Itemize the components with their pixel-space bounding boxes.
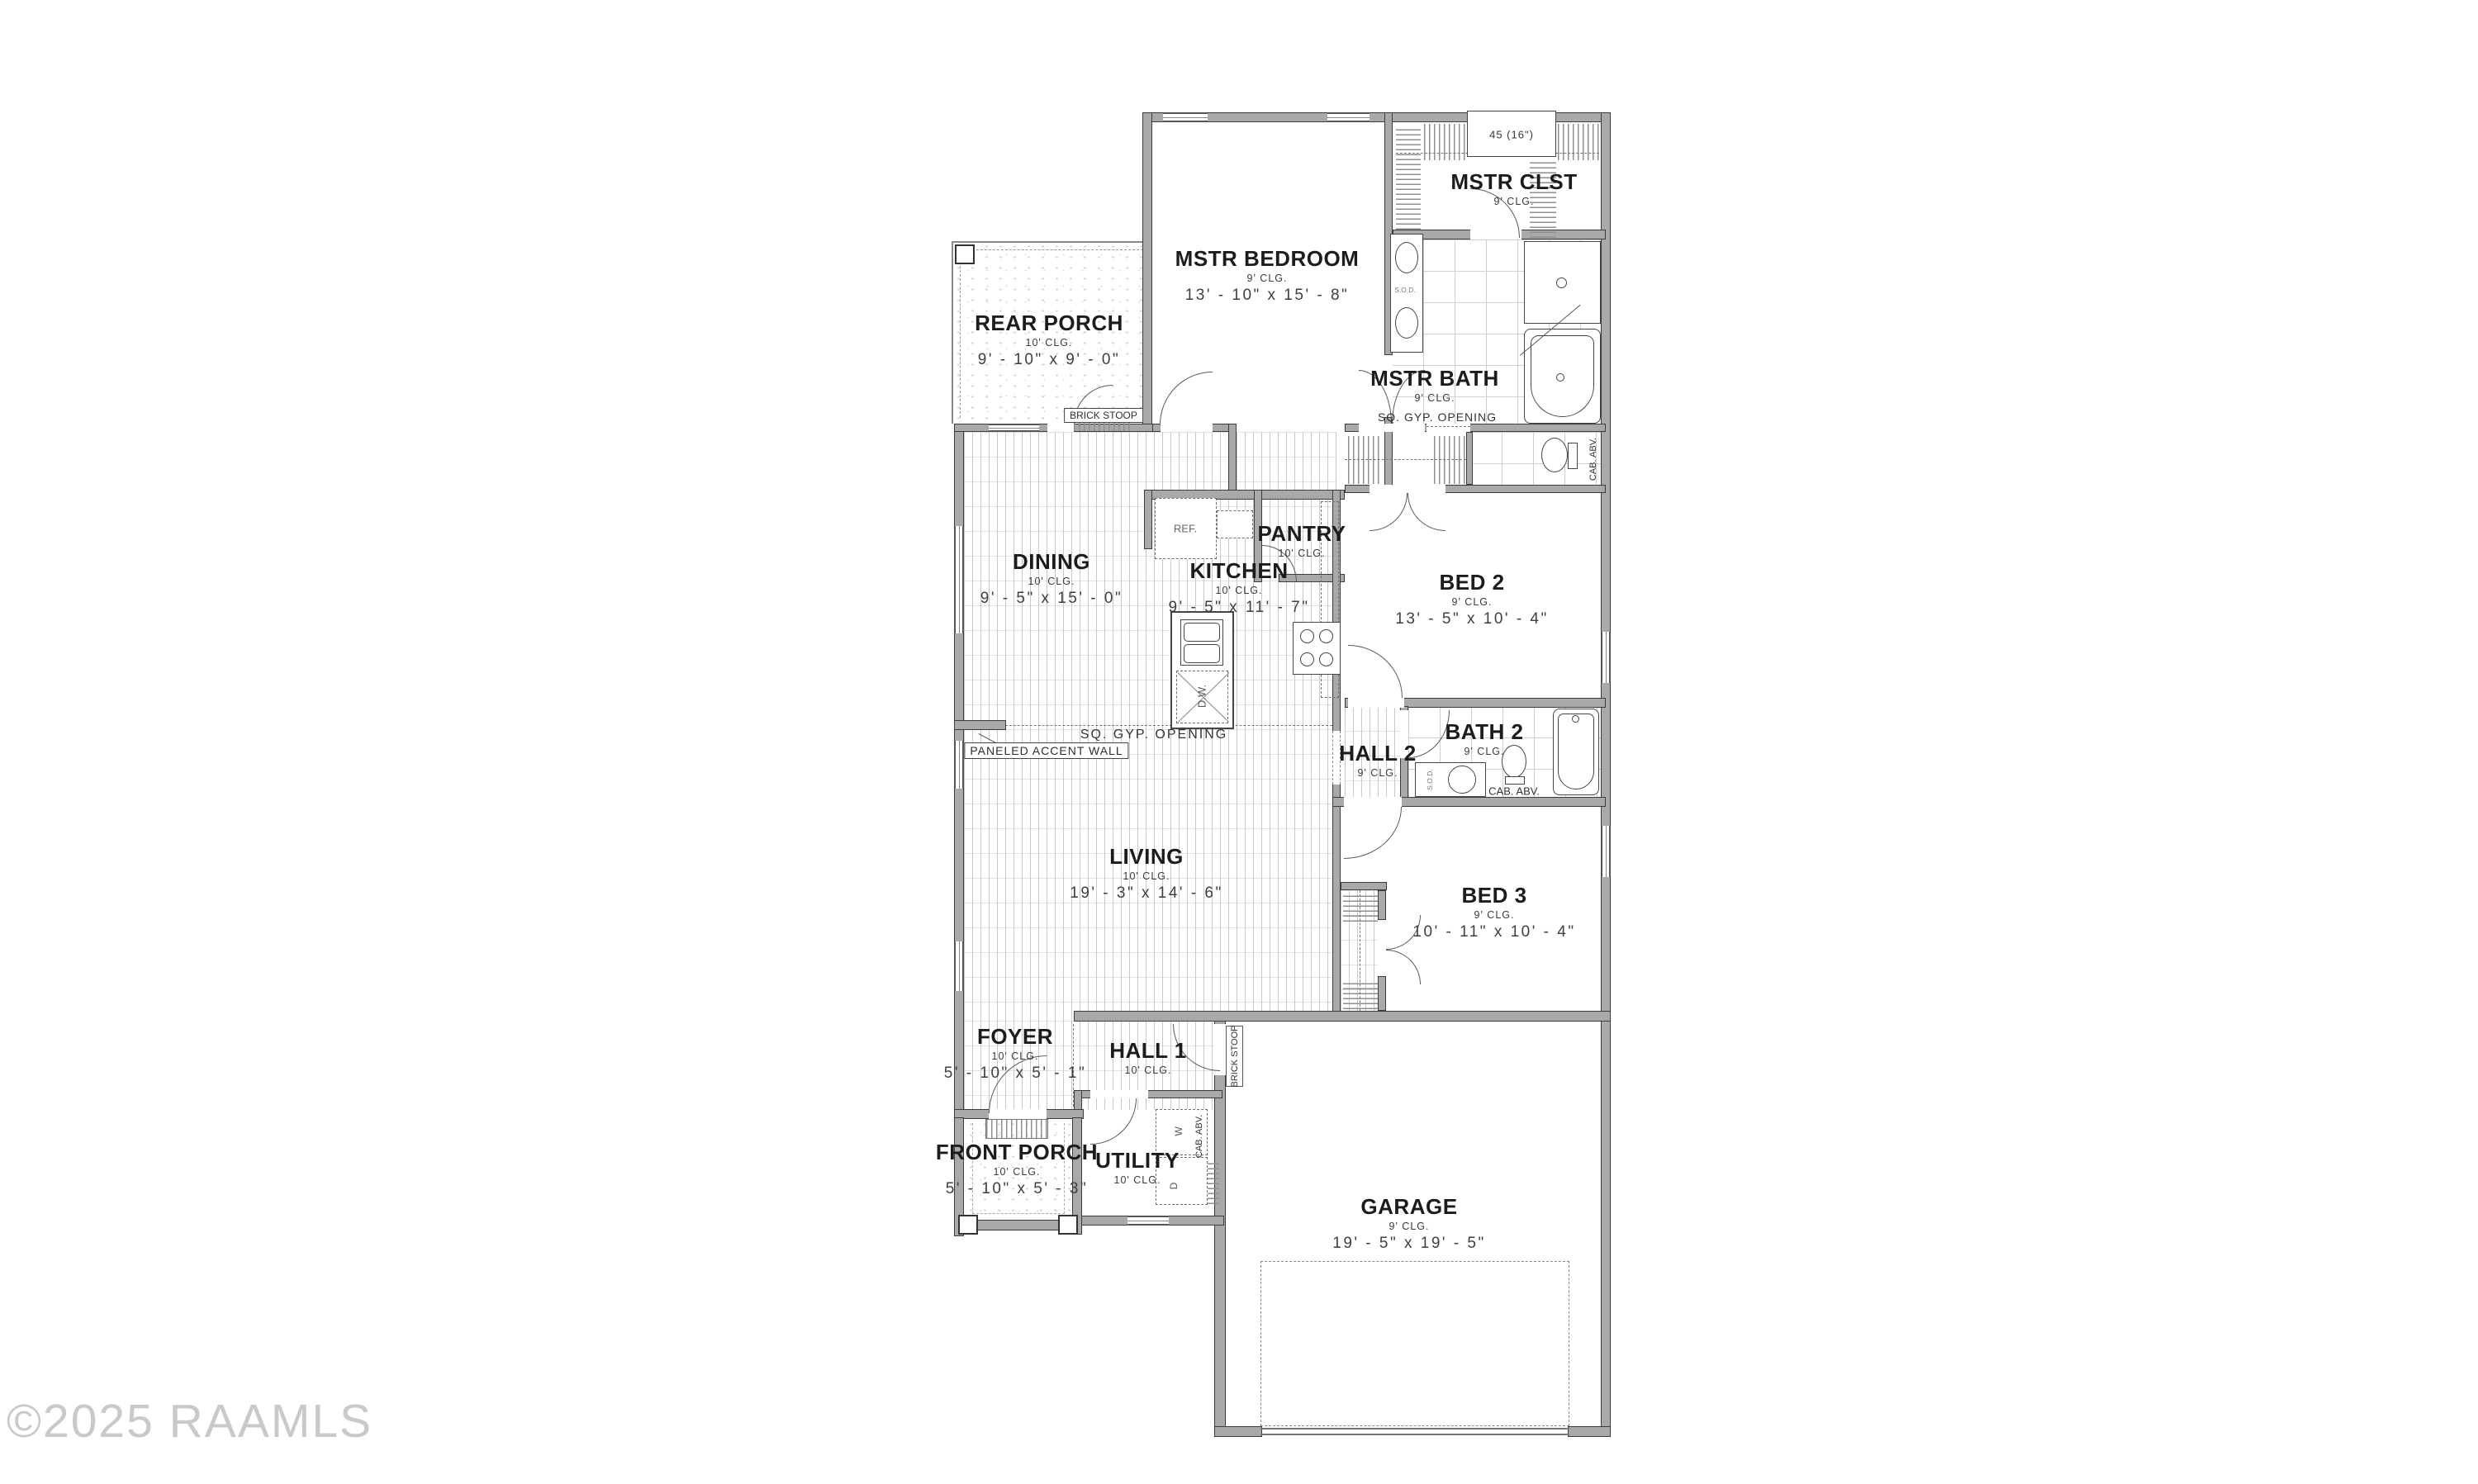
closet-rod-icon <box>1558 124 1599 160</box>
room-label-mstr-clst: MSTR CLST 9' CLG. <box>1450 169 1577 208</box>
room-name: BATH 2 <box>1445 719 1524 745</box>
room-label-dining: DINING 10' CLG. 9' - 5" x 15' - 0" <box>980 549 1123 609</box>
door-swing-arc <box>1370 493 1408 531</box>
room-ceiling: 9' CLG. <box>1412 909 1575 922</box>
brick-stoop-note: BRICK STOOP <box>1064 408 1143 423</box>
paneled-accent-wall-note: PANELED ACCENT WALL <box>964 742 1128 759</box>
toilet-tank-icon <box>1505 776 1525 785</box>
sink-basin-icon <box>1184 623 1220 642</box>
door-opening <box>1348 698 1404 708</box>
garage-door-track <box>1260 1261 1569 1426</box>
closet-rod-icon <box>1434 436 1465 484</box>
toilet-tank-icon <box>1568 443 1578 469</box>
sink-icon <box>1395 242 1418 273</box>
closet-rod-icon <box>1424 124 1465 160</box>
wall <box>1466 432 1473 485</box>
room-label-kitchen: KITCHEN 10' CLG. 9' - 5" x 11' - 7" <box>1169 558 1310 618</box>
shower-drain-icon <box>1556 277 1567 288</box>
porch-post <box>958 1215 978 1235</box>
sod-note: S.O.D. <box>1426 769 1434 790</box>
garage-door <box>1260 1428 1569 1435</box>
room-name: BED 3 <box>1412 883 1575 908</box>
room-dims: 9' - 5" x 15' - 0" <box>980 590 1123 609</box>
toilet-icon <box>1541 438 1568 472</box>
bathtub-basin-icon <box>1558 714 1594 789</box>
tub-faucet-icon <box>1556 373 1564 382</box>
room-name: PANTRY <box>1258 521 1346 547</box>
room-name: LIVING <box>1070 844 1222 870</box>
closet-rod-line <box>1345 459 1466 460</box>
window <box>989 424 1039 432</box>
room-ceiling: 10' CLG. <box>1169 585 1310 597</box>
room-ceiling: 9' CLG. <box>1445 746 1524 758</box>
window <box>954 741 964 789</box>
cab-abv-note: CAB. ABV. <box>1488 785 1540 798</box>
tub-faucet-icon <box>1572 715 1579 723</box>
floor-plan: 45 (16") <box>0 0 2478 1484</box>
door-opening <box>1090 1090 1148 1098</box>
room-name: FOYER <box>944 1024 1086 1050</box>
sq-gyp-opening-note: SQ. GYP. OPENING <box>1378 410 1497 424</box>
door-opening <box>1359 424 1425 432</box>
window <box>1163 112 1208 122</box>
door-swing-arc <box>1344 807 1402 859</box>
room-label-foyer: FOYER 10' CLG. 5' - 10" x 5' - 1" <box>944 1024 1086 1083</box>
closet-rod-icon <box>1343 979 1378 1009</box>
sq-gyp-opening-gap <box>1427 424 1470 432</box>
paneled-accent-wall-stub <box>954 720 1006 730</box>
door-swing-arc <box>1386 950 1421 984</box>
wall <box>1074 1011 1611 1022</box>
brick-steps <box>985 1119 1048 1139</box>
brick-steps <box>1074 423 1133 431</box>
room-label-hall2: HALL 2 9' CLG. <box>1339 741 1417 780</box>
room-name: BED 2 <box>1395 570 1548 595</box>
room-ceiling: 9' CLG. <box>1370 392 1499 405</box>
closet-rod-line <box>1360 890 1360 1011</box>
window <box>954 526 964 633</box>
window <box>1327 112 1370 122</box>
sq-gyp-opening-note: SQ. GYP. OPENING <box>1080 728 1227 742</box>
watermark: ©2025 RAAMLS <box>7 1394 373 1448</box>
cab-abv-note: CAB. ABV. <box>1588 438 1598 481</box>
room-label-garage: GARAGE 9' CLG. 19' - 5" x 19' - 5" <box>1332 1194 1485 1254</box>
room-label-mstr-bath: MSTR BATH 9' CLG. <box>1370 366 1499 405</box>
room-name: HALL 2 <box>1339 741 1417 766</box>
refrigerator-note: REF. <box>1174 523 1197 535</box>
room-dims: 19' - 5" x 19' - 5" <box>1332 1235 1485 1254</box>
room-ceiling: 10' CLG. <box>944 1050 1086 1063</box>
room-label-front-porch: FRONT PORCH 10' CLG. 5' - 10" x 5' - 3" <box>936 1140 1098 1199</box>
sq-gyp-opening-line <box>1427 426 1470 427</box>
window <box>1127 1216 1169 1226</box>
cab-abv-note: CAB. ABV. <box>1194 1115 1204 1158</box>
wall <box>964 1220 1072 1230</box>
door-opening <box>1370 485 1445 493</box>
sod-note: S.O.D. <box>1394 286 1416 294</box>
room-label-hall1: HALL 1 10' CLG. <box>1109 1038 1187 1077</box>
wall <box>1144 490 1152 549</box>
room-dims: 5' - 10" x 5' - 3" <box>936 1180 1098 1199</box>
door-swing-arc <box>1090 1098 1137 1145</box>
porch-post <box>1058 1215 1078 1235</box>
sink-basin-icon <box>1184 644 1220 663</box>
room-ceiling: 9' CLG. <box>1450 196 1577 208</box>
room-ceiling: 9' CLG. <box>1175 273 1360 285</box>
wall <box>1378 890 1386 920</box>
room-dims: 13' - 5" x 10' - 4" <box>1395 610 1548 629</box>
room-label-rear-porch: REAR PORCH 10' CLG. 9' - 10" x 9' - 0" <box>975 311 1123 370</box>
door-opening <box>1047 424 1074 432</box>
room-ceiling: 10' CLG. <box>1109 1064 1187 1077</box>
room-dims: 13' - 10" x 15' - 8" <box>1175 287 1360 306</box>
room-dims: 19' - 3" x 14' - 6" <box>1070 884 1222 903</box>
wall <box>1142 112 1152 432</box>
burner-icon <box>1319 652 1333 666</box>
burner-icon <box>1300 629 1314 643</box>
room-ceiling: 10' CLG. <box>975 337 1123 349</box>
door-opening <box>1161 424 1213 432</box>
tile-floor-mstr-wc <box>1470 432 1601 485</box>
room-ceiling: 9' CLG. <box>1332 1221 1485 1233</box>
room-label-pantry: PANTRY 10' CLG. <box>1258 521 1346 560</box>
room-dims: 9' - 10" x 9' - 0" <box>975 351 1123 370</box>
closet-rod-icon <box>1396 126 1421 230</box>
room-dims: 9' - 5" x 11' - 7" <box>1169 599 1310 618</box>
room-label-mstr-bedroom: MSTR BEDROOM 9' CLG. 13' - 10" x 15' - 8… <box>1175 246 1360 306</box>
wall <box>1378 976 1386 1011</box>
room-label-utility: UTILITY 10' CLG. <box>1095 1148 1180 1187</box>
room-ceiling: 10' CLG. <box>980 576 1123 588</box>
room-ceiling: 10' CLG. <box>936 1166 1098 1178</box>
sink-icon <box>1448 766 1476 794</box>
room-name: MSTR BATH <box>1370 366 1499 391</box>
wall <box>1214 1021 1226 1437</box>
wall <box>1568 1426 1611 1437</box>
window <box>954 941 964 991</box>
dryer-note: D <box>1168 1183 1180 1190</box>
door-swing-arc <box>1160 372 1213 424</box>
wall <box>1228 424 1237 498</box>
room-dims: 10' - 11" x 10' - 4" <box>1412 923 1575 942</box>
wall <box>1341 882 1387 890</box>
sink-icon <box>1395 307 1418 339</box>
room-ceiling: 9' CLG. <box>1339 767 1417 780</box>
door-opening <box>1344 797 1402 807</box>
wall <box>1214 1426 1262 1437</box>
door-swing-arc <box>1408 493 1445 531</box>
cabinet-icon <box>1217 510 1253 538</box>
room-name: FRONT PORCH <box>936 1140 1098 1165</box>
room-label-bath2: BATH 2 9' CLG. <box>1445 719 1524 758</box>
burner-icon <box>1300 652 1314 666</box>
closet-shelf-note: 45 (16") <box>1489 129 1534 141</box>
sq-gyp-opening-line <box>964 725 1332 726</box>
washer-note: W <box>1173 1126 1184 1136</box>
closet-rod-icon <box>1343 892 1378 922</box>
range-icon <box>1293 622 1341 675</box>
wall <box>1601 112 1611 1437</box>
room-ceiling: 9' CLG. <box>1395 596 1548 609</box>
room-name: DINING <box>980 549 1123 575</box>
room-label-bed3: BED 3 9' CLG. 10' - 11" x 10' - 4" <box>1412 883 1575 942</box>
window <box>1601 632 1611 683</box>
brick-stoop-note: BRICK STOOP <box>1230 1026 1240 1088</box>
room-dims: 5' - 10" x 5' - 1" <box>944 1064 1086 1083</box>
window <box>1601 826 1611 877</box>
room-name: UTILITY <box>1095 1148 1180 1173</box>
room-name: KITCHEN <box>1169 558 1310 584</box>
closet-rod-icon <box>1348 436 1381 484</box>
room-label-bed2: BED 2 9' CLG. 13' - 5" x 10' - 4" <box>1395 570 1548 629</box>
room-ceiling: 10' CLG. <box>1070 870 1222 883</box>
room-name: MSTR CLST <box>1450 169 1577 195</box>
door-swing-arc <box>1348 645 1403 698</box>
room-label-living: LIVING 10' CLG. 19' - 3" x 14' - 6" <box>1070 844 1222 903</box>
room-name: GARAGE <box>1332 1194 1485 1220</box>
room-ceiling: 10' CLG. <box>1095 1174 1180 1187</box>
room-name: HALL 1 <box>1109 1038 1187 1064</box>
rear-porch-post <box>955 244 975 264</box>
dryer-vent-hatch <box>1208 1159 1219 1204</box>
dishwasher-note: D.W. <box>1196 685 1208 708</box>
burner-icon <box>1319 629 1333 643</box>
room-ceiling: 10' CLG. <box>1258 548 1346 560</box>
room-name: REAR PORCH <box>975 311 1123 336</box>
room-name: MSTR BEDROOM <box>1175 246 1360 272</box>
